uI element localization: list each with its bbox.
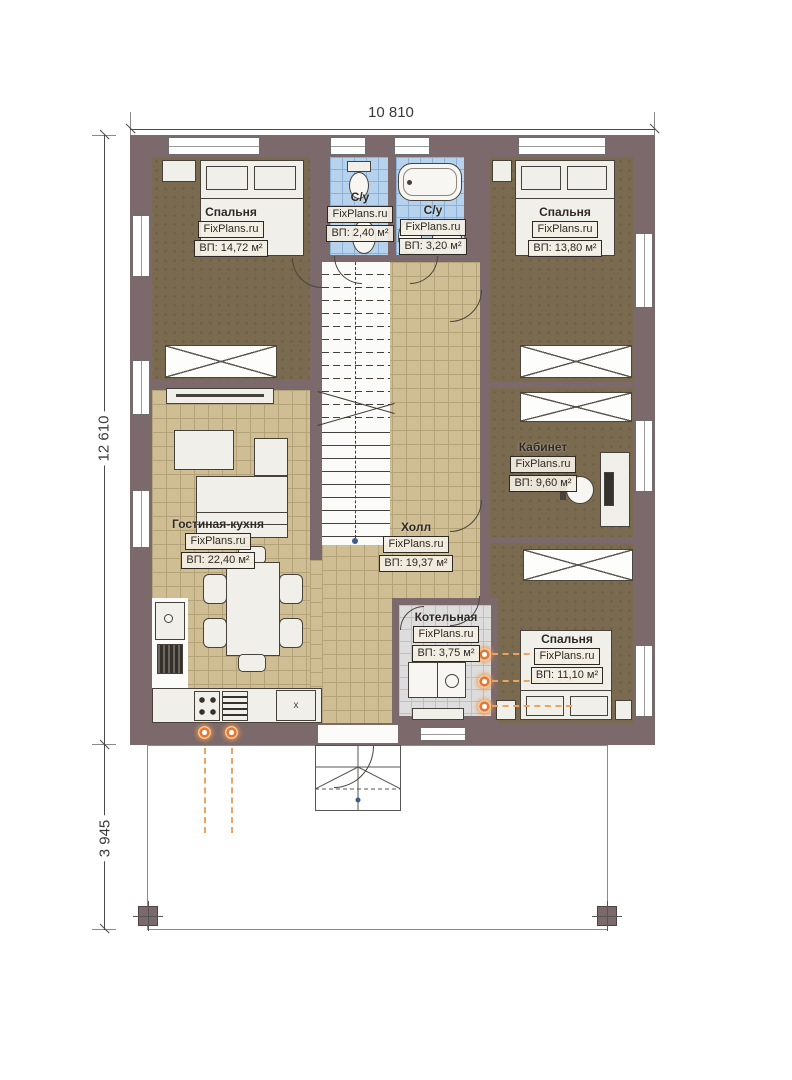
window-icon <box>168 137 260 155</box>
room-label-bathroom-left: С/у FixPlans.ru ВП: 2,40 м² <box>326 190 394 242</box>
radiator-icon <box>478 700 491 713</box>
window-icon <box>635 233 653 308</box>
pillow-icon <box>206 166 248 190</box>
dimension-line-top <box>130 129 655 130</box>
room-label-bedroom-top-right: Спальня FixPlans.ru ВП: 13,80 м² <box>504 205 626 257</box>
monitor-icon <box>604 472 614 506</box>
boiler-cell <box>409 663 438 697</box>
radiator-pipe-line <box>231 748 233 833</box>
window-icon <box>635 645 653 717</box>
window-icon <box>132 360 150 415</box>
room-label-bathroom-right: С/у FixPlans.ru ВП: 3,20 м² <box>398 203 468 255</box>
post-icon <box>597 906 617 926</box>
watermark: FixPlans.ru <box>534 648 599 665</box>
chair-icon <box>238 654 266 672</box>
bathtub-drain-icon <box>407 180 412 185</box>
floor-passage <box>310 560 322 690</box>
pillow-icon <box>570 696 608 716</box>
toilet-tank-icon <box>347 161 371 172</box>
wardrobe-icon <box>520 392 632 422</box>
blanket-line <box>520 690 612 691</box>
wardrobe-icon <box>520 345 632 378</box>
watermark: FixPlans.ru <box>327 206 392 223</box>
radiator-pipe-line <box>204 748 206 833</box>
watermark: FixPlans.ru <box>510 456 575 473</box>
wardrobe-icon <box>165 345 277 378</box>
washer-cell <box>438 663 466 697</box>
radiator-pipe-line <box>492 705 572 707</box>
room-label-bedroom-bottom-right: Спальня FixPlans.ru ВП: 11,10 м² <box>518 632 616 684</box>
area-value: ВП: 13,80 м² <box>528 240 601 257</box>
oven-icon <box>222 691 248 721</box>
area-value: ВП: 11,10 м² <box>531 667 603 684</box>
kitchen-appliance-icon <box>157 644 183 674</box>
watermark: FixPlans.ru <box>413 626 478 643</box>
area-value: ВП: 19,37 м² <box>379 555 452 572</box>
nightstand-icon <box>615 700 632 720</box>
extension-line <box>130 112 131 135</box>
sofa-cushion-line <box>196 512 288 513</box>
area-value: ВП: 2,40 м² <box>326 225 393 242</box>
area-value: ВП: 3,75 м² <box>412 645 479 662</box>
nightstand-icon <box>162 160 196 182</box>
stove-icon <box>194 691 220 721</box>
floor-plan: 10 810 12 610 3 945 <box>0 0 792 1080</box>
entrance-opening <box>318 725 398 743</box>
radiator-icon <box>198 726 211 739</box>
pillow-icon <box>567 166 607 190</box>
sink-icon: x <box>276 690 316 721</box>
window-icon <box>330 137 366 155</box>
watermark: FixPlans.ru <box>400 219 465 236</box>
window-icon <box>518 137 606 155</box>
area-value: ВП: 22,40 м² <box>181 552 254 569</box>
area-value: ВП: 3,20 м² <box>399 238 466 255</box>
chair-icon <box>279 574 303 604</box>
window-icon <box>635 420 653 492</box>
radiator-icon <box>225 726 238 739</box>
sofa-chaise-icon <box>254 438 288 476</box>
blanket-line <box>200 198 304 199</box>
wardrobe-icon <box>523 549 633 581</box>
stairs-start-dot <box>352 538 358 544</box>
room-label-hall: Холл FixPlans.ru ВП: 19,37 м² <box>368 520 464 572</box>
watermark: FixPlans.ru <box>198 221 263 238</box>
window-icon <box>132 215 150 277</box>
dimension-height-label: 12 610 <box>95 412 112 466</box>
chair-icon <box>279 618 303 648</box>
washer-door-icon <box>445 674 459 688</box>
window-icon <box>394 137 430 155</box>
dining-table-icon <box>226 562 280 656</box>
bathtub-icon <box>398 163 462 201</box>
nightstand-icon <box>492 160 512 182</box>
extension-line <box>654 112 655 135</box>
area-value: ВП: 14,72 м² <box>194 240 267 257</box>
pillow-icon <box>254 166 296 190</box>
chair-icon <box>203 618 227 648</box>
room-label-cabinet: Кабинет FixPlans.ru ВП: 9,60 м² <box>494 440 592 492</box>
boiler-threshold <box>412 708 464 720</box>
pillow-icon <box>521 166 561 190</box>
coffee-table-icon <box>174 430 234 470</box>
chair-icon <box>203 574 227 604</box>
dimension-width-label: 10 810 <box>364 104 418 121</box>
room-label-living-kitchen: Гостиная-кухня FixPlans.ru ВП: 22,40 м² <box>158 517 278 569</box>
watermark: FixPlans.ru <box>532 221 597 238</box>
dimension-terrace-label: 3 945 <box>96 816 113 862</box>
rear-opening <box>420 727 466 741</box>
fridge-handle-icon <box>164 614 173 623</box>
window-icon <box>132 490 150 548</box>
nightstand-icon <box>496 700 516 720</box>
blanket-line <box>515 198 615 199</box>
boiler-icon <box>408 662 466 698</box>
room-label-boiler: Котельная FixPlans.ru ВП: 3,75 м² <box>399 610 493 662</box>
tv-icon <box>176 394 264 397</box>
post-icon <box>138 906 158 926</box>
area-value: ВП: 9,60 м² <box>509 475 576 492</box>
room-label-bedroom-top-left: Спальня FixPlans.ru ВП: 14,72 м² <box>170 205 292 257</box>
watermark: FixPlans.ru <box>383 536 448 553</box>
radiator-icon <box>478 675 491 688</box>
watermark: FixPlans.ru <box>185 533 250 550</box>
